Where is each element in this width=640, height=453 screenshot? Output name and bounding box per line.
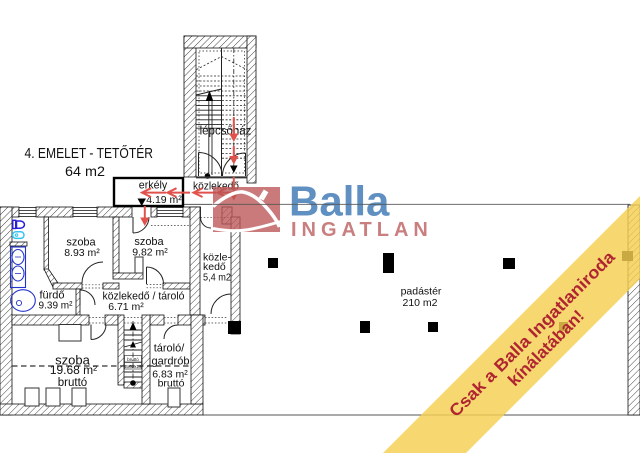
svg-text:bruttó: bruttó [127,357,139,362]
svg-text:bruttó: bruttó [58,377,87,389]
svg-text:lépcsőház: lépcsőház [200,126,252,138]
svg-text:5,4 m2: 5,4 m2 [203,272,231,284]
svg-text:64 m2: 64 m2 [65,164,105,179]
svg-text:tároló/: tároló/ [154,343,186,355]
svg-text:8.93 m²: 8.93 m² [64,247,100,259]
svg-text:4.19 m²: 4.19 m² [146,194,182,206]
svg-text:9.39 m²: 9.39 m² [39,301,74,312]
svg-text:210 m2: 210 m2 [402,297,437,309]
svg-text:19.68 m²: 19.68 m² [50,363,97,377]
svg-text:bruttó: bruttó [158,378,185,390]
svg-text:padástér: padástér [401,286,442,298]
svg-text:6.71 m²: 6.71 m² [108,301,144,313]
svg-text:INGATLAN: INGATLAN [291,219,433,241]
svg-text:4. EMELET - TETŐTÉR: 4. EMELET - TETŐTÉR [25,145,154,162]
svg-text:erkély: erkély [139,180,168,192]
svg-text:gardrób: gardrób [152,356,190,368]
svg-text:9.82 m²: 9.82 m² [132,247,168,259]
svg-text:Balla: Balla [289,178,390,225]
